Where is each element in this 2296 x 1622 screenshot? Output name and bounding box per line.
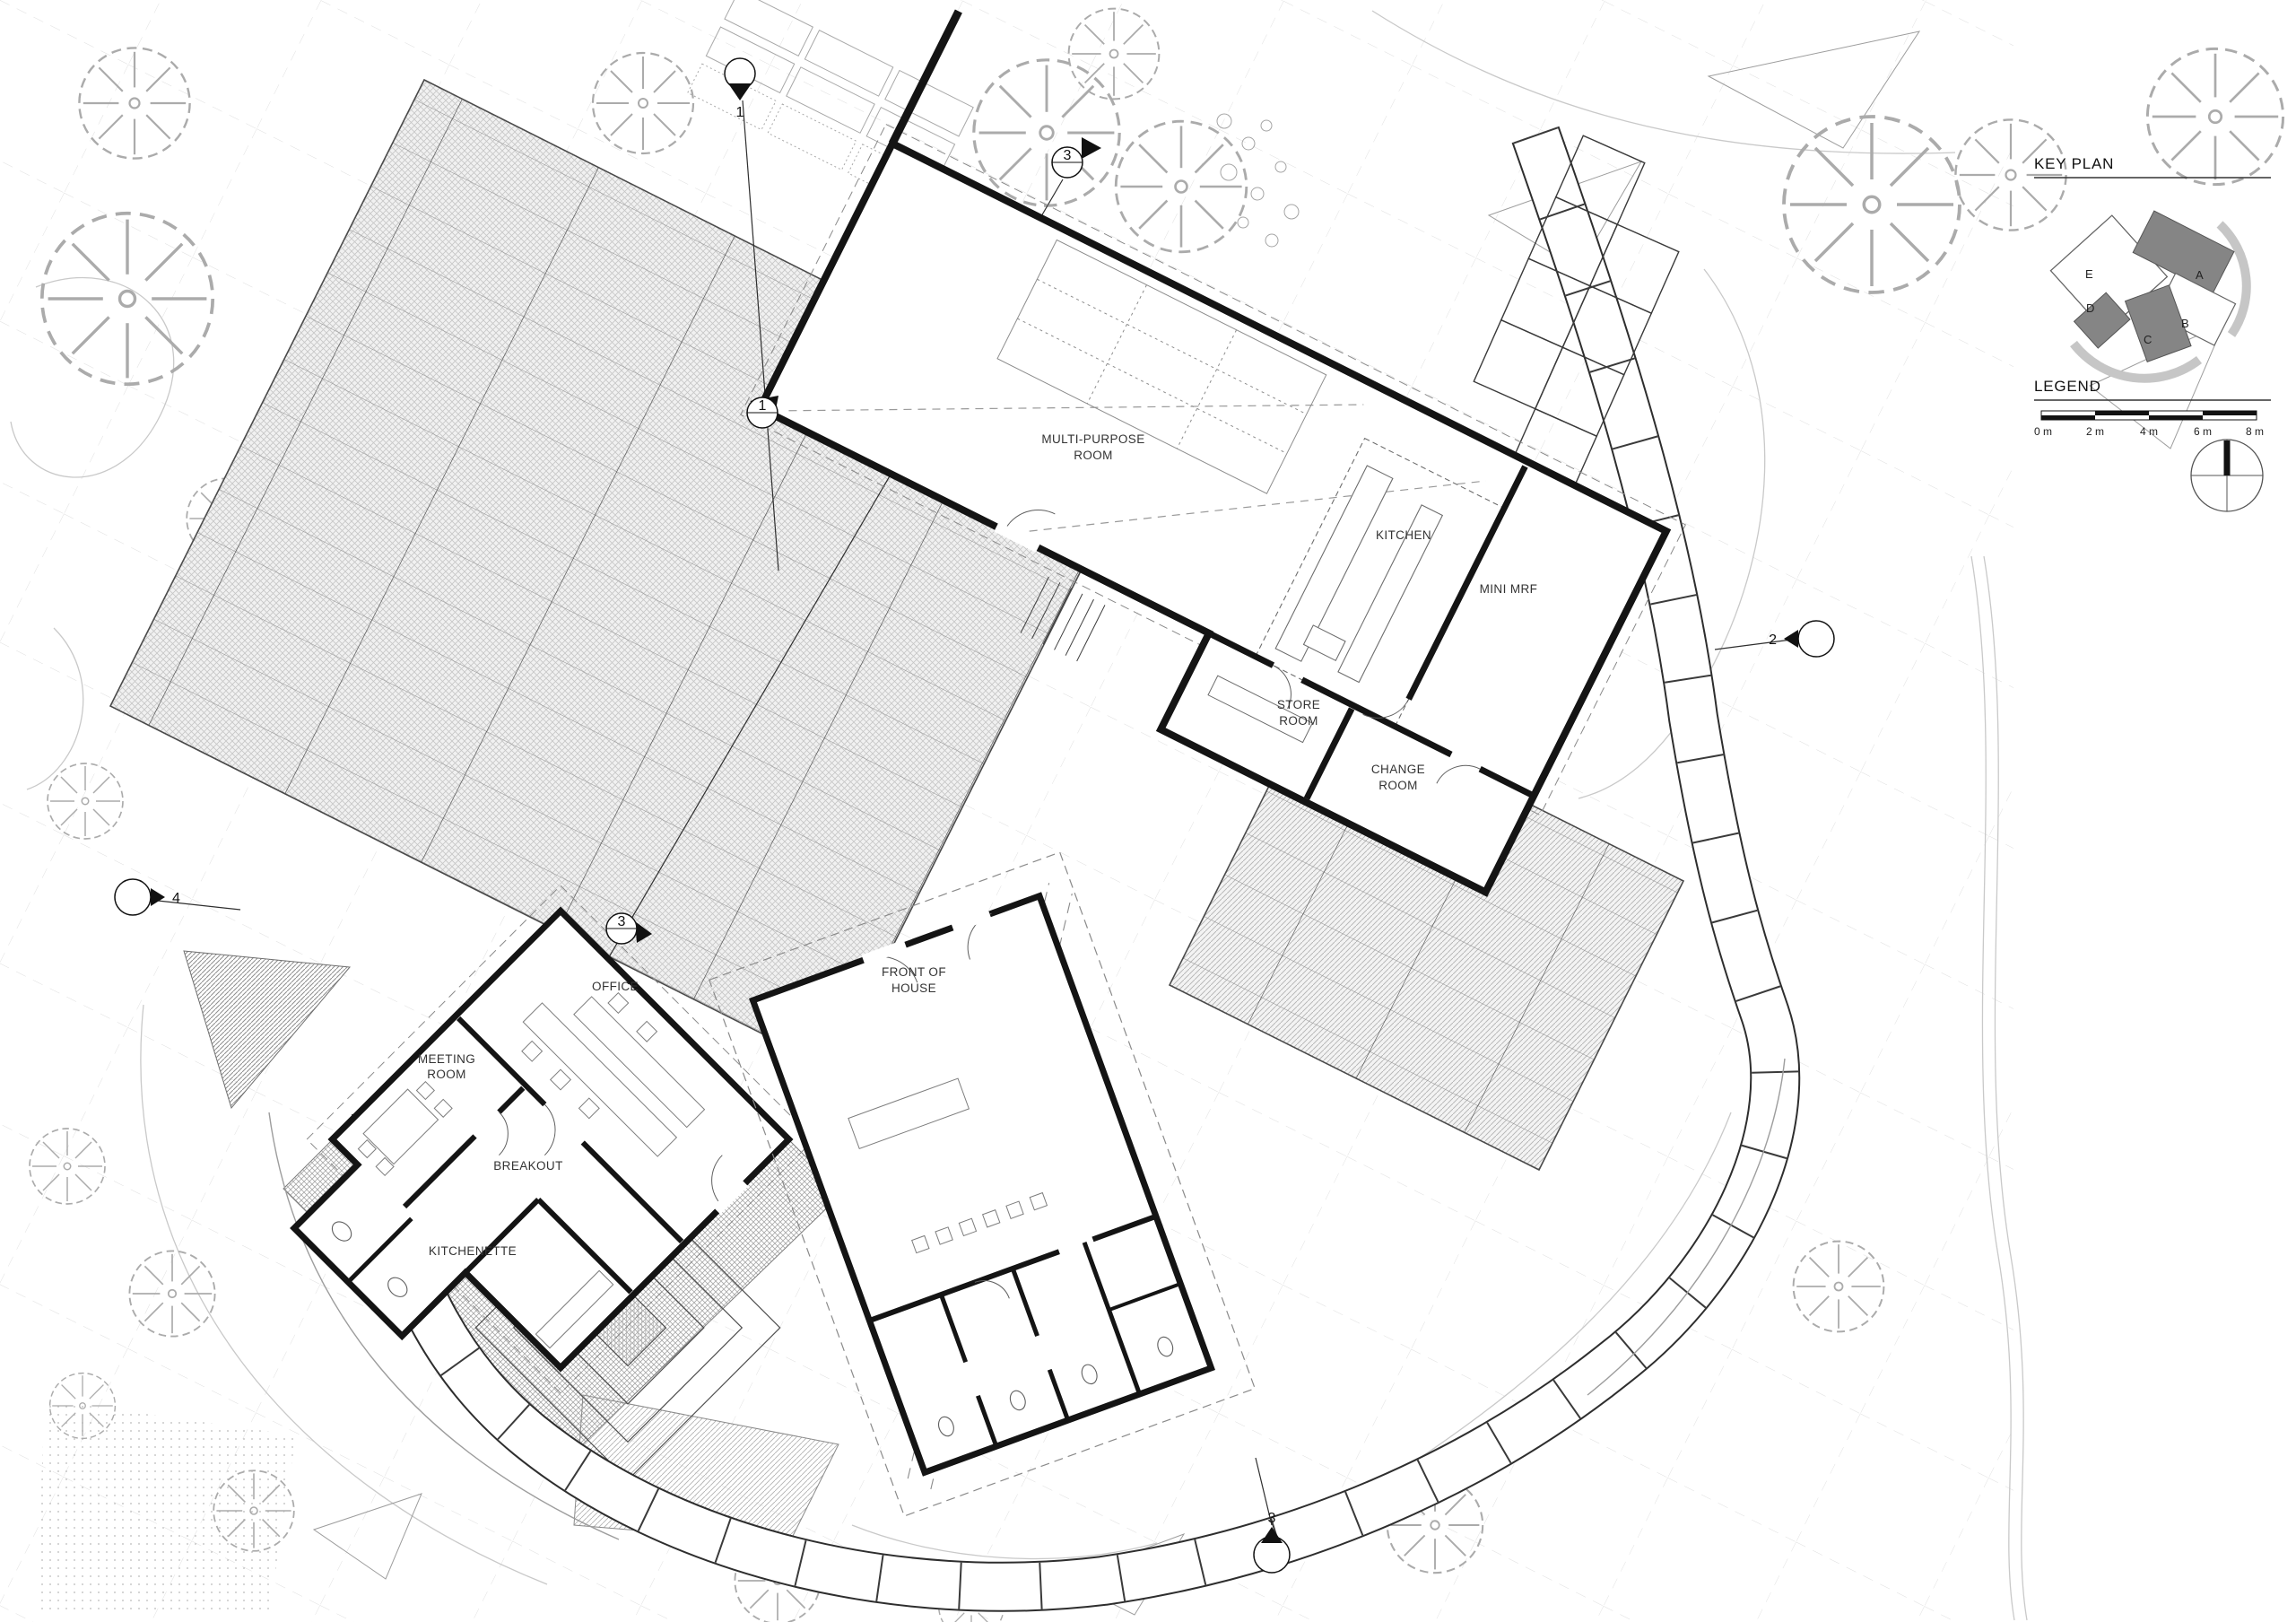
key-plan-label-e: E (2085, 267, 2093, 281)
key-plan-label-b: B (2181, 317, 2189, 330)
scale-label-0: 0 m (2034, 425, 2052, 438)
marker-number: 3 (1268, 1511, 1276, 1526)
label-breakout: BREAKOUT (493, 1159, 562, 1173)
legend-title: LEGEND (2034, 378, 2101, 395)
marker-number: 4 (172, 891, 180, 906)
label-store-room-line1: STORE (1277, 698, 1320, 711)
site-plan-canvas: MULTI-PURPOSE ROOM KITCHEN MINI MRF STOR… (0, 0, 2296, 1622)
marker-number: 1 (759, 398, 767, 414)
site-plan: MULTI-PURPOSE ROOM KITCHEN MINI MRF STOR… (0, 0, 2296, 1622)
label-front-of-house-line2: HOUSE (891, 981, 936, 995)
label-change-room-line1: CHANGE (1371, 763, 1425, 776)
marker-number: 3 (618, 914, 626, 929)
sand-texture-area (36, 1400, 296, 1615)
key-plan-label-d: D (2086, 301, 2094, 315)
marker-number: 3 (1064, 148, 1072, 163)
scale-label-4: 4 m (2140, 425, 2158, 438)
label-mini-mrf: MINI MRF (1480, 582, 1538, 596)
label-multi-purpose-line2: ROOM (1074, 449, 1113, 462)
scale-label-8: 8 m (2246, 425, 2264, 438)
label-kitchen: KITCHEN (1376, 528, 1431, 542)
north-arrow (2191, 440, 2263, 511)
label-front-of-house-line1: FRONT OF (882, 965, 946, 979)
label-meeting-room-line1: MEETING (418, 1052, 475, 1066)
marker-number: 1 (736, 105, 744, 120)
key-plan-title: KEY PLAN (2034, 155, 2114, 172)
label-office: OFFICE (592, 980, 639, 993)
scale-label-2: 2 m (2086, 425, 2104, 438)
label-multi-purpose-line1: MULTI-PURPOSE (1041, 432, 1144, 446)
label-kitchenette: KITCHENETTE (429, 1244, 517, 1258)
key-plan-label-c: C (2144, 333, 2152, 346)
scale-label-6: 6 m (2194, 425, 2212, 438)
label-store-room-line2: ROOM (1279, 714, 1318, 728)
label-meeting-room-line2: ROOM (427, 1068, 466, 1081)
label-change-room-line2: ROOM (1378, 779, 1418, 792)
key-plan-label-a: A (2196, 268, 2204, 282)
marker-number: 2 (1769, 632, 1777, 648)
